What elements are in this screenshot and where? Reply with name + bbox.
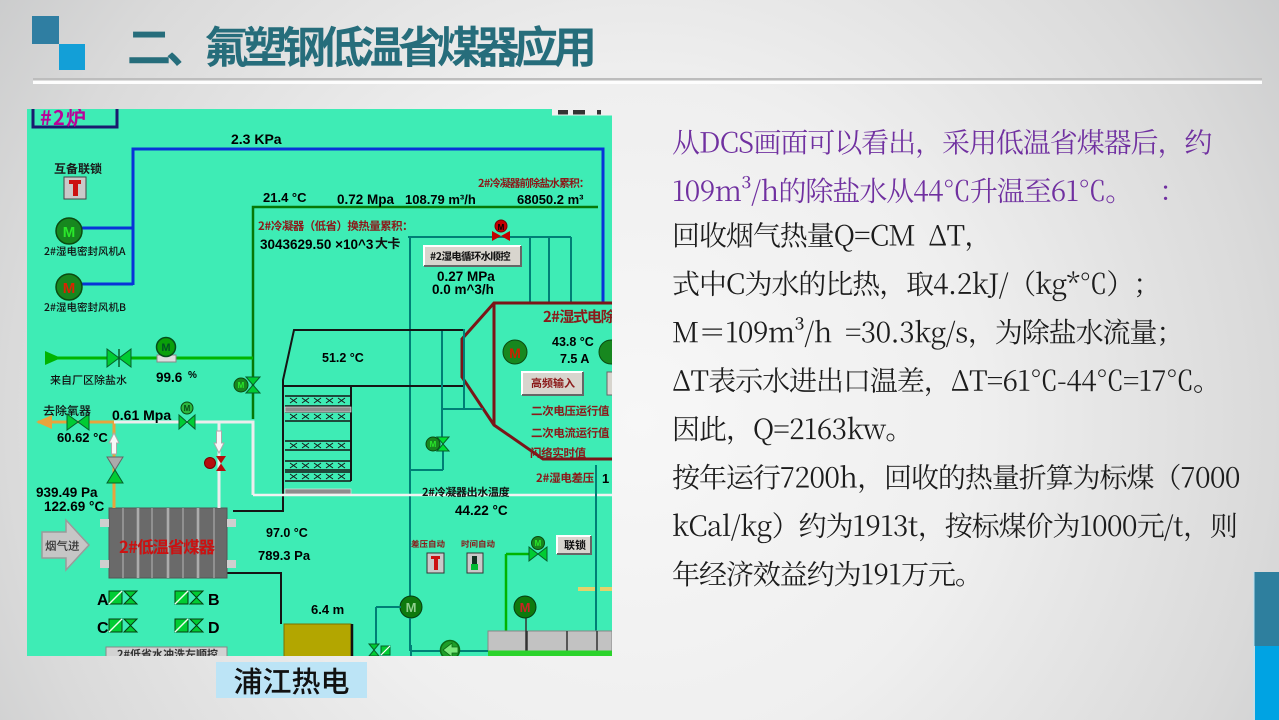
- svg-text:108.79 m³/h: 108.79 m³/h: [405, 192, 476, 207]
- svg-text:43.8 °C: 43.8 °C: [552, 335, 594, 349]
- svg-text:99.6: 99.6: [156, 370, 183, 385]
- svg-text:C: C: [97, 620, 109, 637]
- svg-text:B: B: [208, 592, 220, 609]
- svg-text:M: M: [430, 440, 437, 449]
- svg-text:M: M: [184, 404, 191, 413]
- svg-text:M: M: [63, 224, 76, 241]
- svg-text:M: M: [498, 223, 505, 232]
- svg-text:M: M: [406, 600, 417, 615]
- svg-text:6.4 m: 6.4 m: [311, 602, 344, 617]
- svg-text:M: M: [535, 539, 542, 548]
- svg-text:M: M: [238, 381, 245, 390]
- svg-text:0.0 m^3/h: 0.0 m^3/h: [432, 282, 494, 297]
- svg-text:1: 1: [602, 471, 609, 486]
- svg-text:0.61 Mpa: 0.61 Mpa: [112, 407, 171, 423]
- svg-text:7.5 A: 7.5 A: [560, 352, 589, 366]
- svg-text:A: A: [97, 592, 109, 609]
- svg-text:789.3 Pa: 789.3 Pa: [258, 548, 311, 563]
- svg-text:0.72 Mpa: 0.72 Mpa: [337, 192, 395, 207]
- svg-text:2.3 KPa: 2.3 KPa: [231, 131, 282, 147]
- svg-text:M: M: [509, 345, 521, 361]
- svg-text:3043629.50 ×10^3: 3043629.50 ×10^3: [260, 237, 374, 252]
- svg-text:939.49 Pa: 939.49 Pa: [36, 485, 98, 500]
- svg-text:M: M: [161, 342, 170, 354]
- svg-text:51.2 °C: 51.2 °C: [322, 351, 364, 365]
- svg-text:M: M: [63, 280, 76, 297]
- svg-text:68050.2 m³: 68050.2 m³: [517, 192, 584, 207]
- svg-text:M: M: [520, 600, 531, 615]
- svg-text:D: D: [208, 620, 220, 637]
- svg-text:21.4 °C: 21.4 °C: [263, 190, 307, 205]
- svg-text:60.62 °C: 60.62 °C: [57, 430, 108, 445]
- svg-text:44.22 °C: 44.22 °C: [455, 503, 508, 518]
- svg-text:97.0 °C: 97.0 °C: [266, 526, 308, 540]
- svg-text:%: %: [188, 370, 197, 381]
- svg-text:122.69 °C: 122.69 °C: [44, 499, 104, 514]
